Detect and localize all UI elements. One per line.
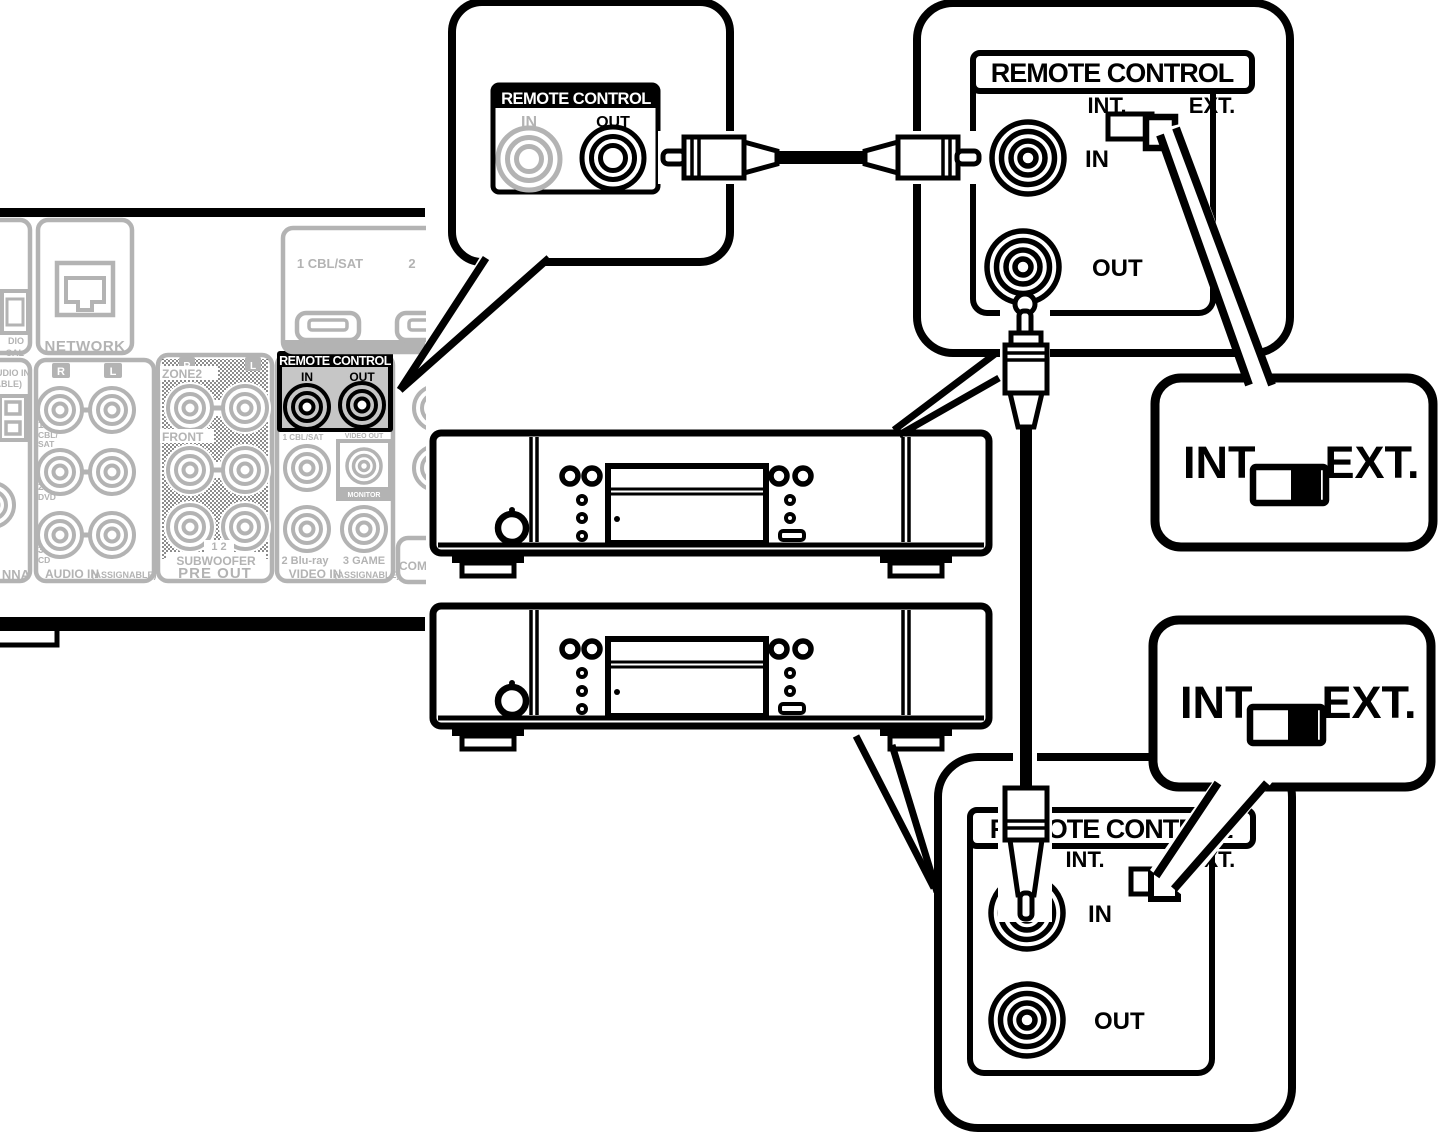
network-label: NETWORK [45, 338, 126, 355]
audio-in-3-l-jack-icon [90, 513, 134, 557]
panel-top-out-label: OUT [1092, 255, 1143, 282]
zone2-l-jack-icon [223, 386, 267, 430]
pre-out-section: R L ZONE2 FRONT 1 2 SUBWOOFER PRE OUT [158, 355, 272, 582]
panel-top-in-label: IN [1085, 146, 1109, 173]
cable-wire-horizontal [775, 151, 867, 164]
callout-bottom-switch [1250, 707, 1323, 743]
video-in-row1-label: 1 CBL/SAT [283, 433, 324, 442]
pre-out-l-label: L [250, 361, 256, 372]
audio-in-partial-label2: ABLE) [0, 379, 22, 389]
pre-out-section-label: PRE OUT [178, 565, 252, 582]
audio-in-1-r-jack-icon [38, 388, 82, 432]
audio-in-2-l-jack-icon [90, 450, 134, 494]
audio-in-1-l-jack-icon [90, 388, 134, 432]
hdmi-port-icon [297, 313, 359, 340]
receiver-left-partial-section: DIO CAL UDIO IN ABLE) NNA [0, 220, 31, 582]
receiver-remote-in-jack-icon [285, 385, 329, 429]
antenna-label-partial: NNA [2, 567, 31, 582]
panel-bottom-out-label: OUT [1094, 1008, 1145, 1035]
audio-in-l-label: L [110, 366, 117, 378]
video-in-1-jack-icon [285, 446, 329, 490]
zone2-r-jack-icon [168, 386, 212, 430]
audio-in-section-label-sub: (ASSIGNABLE) [92, 570, 157, 580]
zone2-label: ZONE2 [162, 367, 202, 381]
antenna-jack-icon [0, 483, 14, 527]
subwoofer-nums-label: 1 2 [211, 541, 226, 553]
callout-top-ext-label: EXT. [1324, 437, 1419, 488]
receiver-remote-title: REMOTE CONTROL [279, 354, 392, 368]
rca-plug-down-body [1005, 788, 1047, 840]
rca-cable-vertical [998, 294, 1052, 922]
optical-label-partial2: CAL [6, 348, 25, 358]
component-label-partial: COM [399, 559, 427, 573]
video-out-label: VIDEO OUT [345, 433, 384, 440]
front-r-jack-icon [168, 448, 212, 492]
cable-wire-vertical [1020, 425, 1032, 790]
rca-plug-down-pin [1020, 893, 1032, 919]
callout-top-switch [1253, 467, 1326, 503]
video-in-row2b-label: 3 GAME [343, 555, 385, 567]
audio-in-r-label: R [57, 366, 65, 378]
audio-in-section: R L 1 CBL/ SAT 2 DVD 3 CD AUDIO IN (ASSI… [36, 360, 157, 581]
player-device-2 [433, 606, 989, 749]
receiver-remote-control-section: REMOTE CONTROL IN OUT [277, 351, 393, 432]
front-l-jack-icon [223, 448, 267, 492]
video-in-section-label-sub: (ASSIGNABLE) [335, 570, 400, 580]
rca-cable-horizontal [658, 131, 988, 184]
front-label: FRONT [162, 430, 204, 444]
hdmi-2-label: 2 [408, 256, 415, 271]
network-section: NETWORK [38, 220, 132, 355]
callout-top-switch-knob [1291, 469, 1321, 501]
receiver-remote-in-label: IN [301, 370, 313, 384]
audio-in-3-r-jack-icon [38, 513, 82, 557]
receiver-remote-out-jack-icon [340, 383, 384, 427]
monitor-label: MONITOR [348, 492, 381, 499]
audio-in-row2-label: DVD [38, 492, 56, 502]
video-in-2-jack-icon [285, 507, 329, 551]
video-in-3-jack-icon [342, 507, 386, 551]
panel-bottom-int-label: INT. [1065, 847, 1104, 872]
panel-top-title: REMOTE CONTROL [991, 58, 1234, 88]
callout-bottom-switch-knob [1288, 709, 1318, 741]
audio-in-row1-label2: SAT [38, 439, 55, 449]
optical-label-partial: DIO [8, 336, 24, 346]
player-device-1 [433, 433, 989, 576]
remote-jacks-callout: REMOTE CONTROL IN OUT [399, 2, 730, 392]
remote-connection-diagram: DIO CAL UDIO IN ABLE) NNA NETWORK R L [0, 0, 1438, 1134]
panel-top-ext-label: EXT. [1189, 93, 1235, 118]
receiver-rear-panel: DIO CAL UDIO IN ABLE) NNA NETWORK R L [0, 208, 478, 645]
audio-in-row3-label: CD [38, 555, 50, 565]
hdmi-1-label: 1 CBL/SAT [297, 256, 363, 271]
jack-callout-title: REMOTE CONTROL [501, 90, 651, 108]
video-in-section-label: VIDEO IN [289, 567, 342, 581]
audio-in-2-r-jack-icon [38, 450, 82, 494]
audio-in-partial-label: UDIO IN [0, 368, 30, 378]
callout-bottom-ext-label: EXT. [1321, 677, 1416, 728]
receiver-bottom-edge [0, 617, 425, 631]
receiver-top-edge [0, 208, 425, 217]
panel-bottom-in-label: IN [1088, 901, 1112, 928]
rca-plug-right-pin [957, 151, 979, 164]
component-jack-icon [414, 386, 458, 430]
video-in-row2a-label: 2 Blu-ray [281, 555, 329, 567]
receiver-bottom-notch [0, 631, 57, 645]
monitor-jack-icon [347, 449, 381, 483]
